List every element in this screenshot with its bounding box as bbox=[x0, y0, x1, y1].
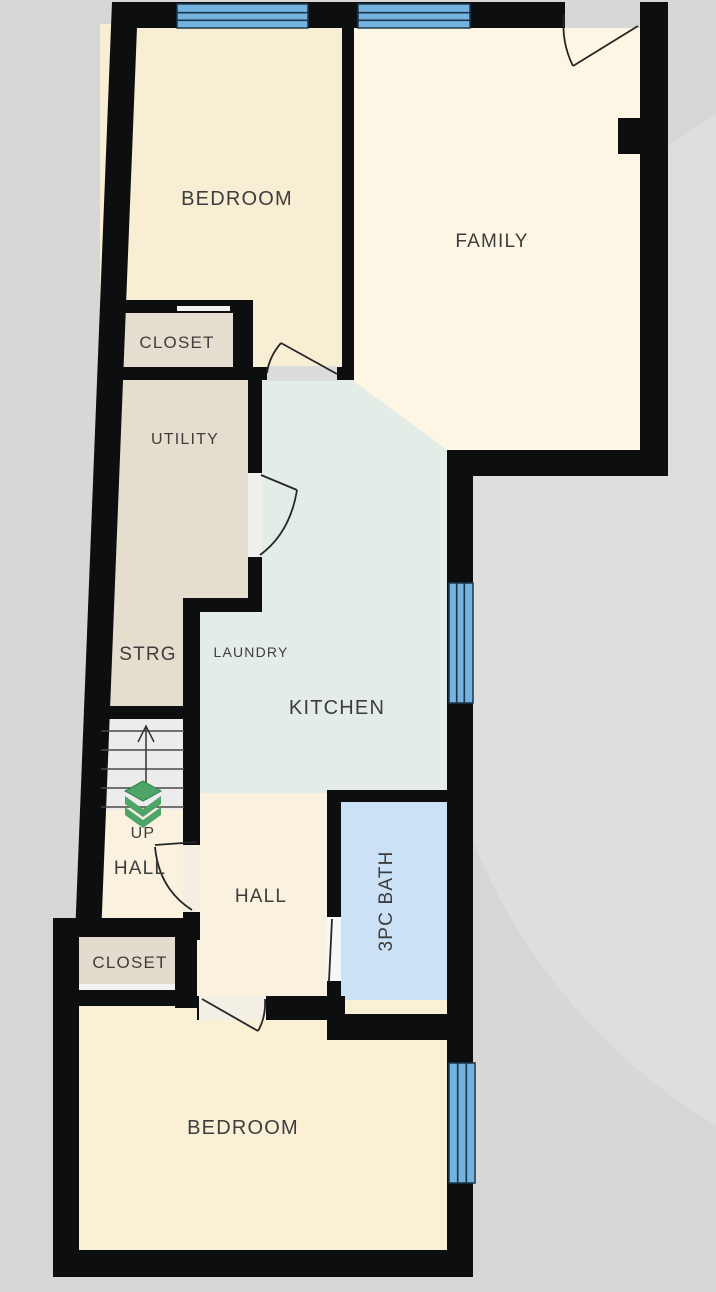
door-gap-utility bbox=[248, 473, 262, 557]
wall-bath-bottom bbox=[327, 1014, 473, 1040]
room-label-closet-top: CLOSET bbox=[139, 333, 214, 352]
wall-strg-bottom bbox=[85, 706, 200, 719]
window-top-left bbox=[177, 4, 308, 28]
room-label-bedroom-bottom: BEDROOM bbox=[187, 1117, 299, 1139]
stairs-up-label: UP bbox=[131, 825, 156, 842]
door-gap-hall-left bbox=[183, 845, 200, 912]
room-label-kitchen: KITCHEN bbox=[289, 697, 385, 719]
wall-bath-left-stub bbox=[327, 978, 341, 1020]
floor-plan-page: BEDROOM FAMILY CLOSET UTILITY STRG LAUND… bbox=[0, 0, 716, 1292]
room-label-closet-bottom: CLOSET bbox=[92, 953, 167, 972]
room-label-bedroom-top: BEDROOM bbox=[181, 188, 293, 210]
floor-plan: BEDROOM FAMILY CLOSET UTILITY STRG LAUND… bbox=[0, 0, 716, 1292]
window-kitchen-right bbox=[449, 583, 473, 703]
wall-right-family bbox=[640, 2, 668, 476]
closet-bottom-rod-line bbox=[79, 984, 175, 990]
room-label-strg: STRG bbox=[119, 644, 177, 665]
room-label-bath: 3PC BATH bbox=[376, 850, 397, 951]
wall-bedroom-family-divider bbox=[342, 24, 354, 380]
room-label-hall-left: HALL bbox=[114, 858, 166, 879]
room-label-family: FAMILY bbox=[455, 231, 528, 252]
door-gap-family-entry bbox=[565, 2, 640, 28]
wall-bottom bbox=[53, 1250, 473, 1277]
wall-closet-bottom-bottom bbox=[75, 990, 197, 1006]
wall-bath-left bbox=[327, 790, 341, 920]
wall-closet-top-bottom bbox=[101, 367, 262, 380]
window-top-right bbox=[358, 4, 470, 28]
window-bedroom-right bbox=[449, 1063, 475, 1183]
wall-left-jut bbox=[53, 918, 79, 1277]
wall-pillar-family bbox=[618, 118, 640, 154]
wall-family-bottom bbox=[447, 450, 668, 476]
room-label-utility: UTILITY bbox=[151, 431, 219, 448]
wall-bath-top bbox=[327, 790, 449, 802]
room-label-laundry: LAUNDRY bbox=[213, 644, 288, 660]
room-label-hall-center: HALL bbox=[235, 886, 287, 907]
closet-top-rod-line bbox=[177, 306, 230, 311]
